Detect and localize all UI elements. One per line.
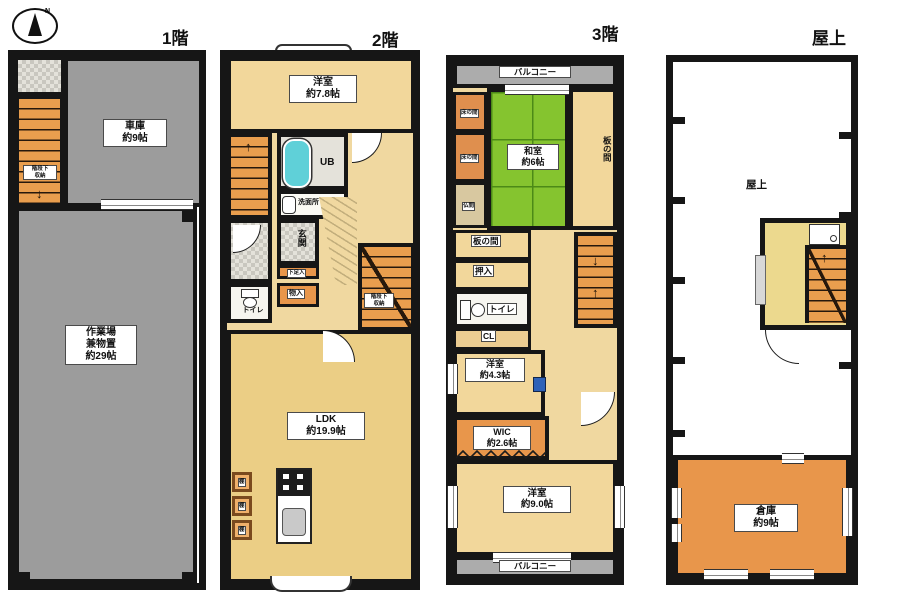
compass-needle-icon — [28, 13, 42, 36]
tokonoma-label: 床の間 — [460, 109, 479, 118]
butsuma-label: 仏間 — [462, 202, 475, 211]
kitchen-sink-icon — [282, 508, 306, 536]
window — [447, 364, 458, 394]
shelf-label: 棚 — [238, 526, 246, 535]
ldk-label: LDK 約19.9帖 — [287, 412, 365, 440]
balcony-door-opening — [505, 84, 569, 95]
roof-terrace-label: 屋上 — [743, 178, 770, 193]
genkan-label: 玄関 — [295, 229, 308, 247]
bedroom78-label: 洋室 約7.8帖 — [289, 75, 357, 103]
window — [770, 569, 814, 580]
door-opening — [782, 453, 804, 464]
fixture-icon — [533, 377, 546, 392]
balcony-top-label: バルコニー — [499, 66, 571, 78]
floor3-title: 3階 — [592, 20, 618, 45]
window — [447, 486, 458, 528]
washitsu-label: 和室 約6帖 — [507, 144, 559, 170]
wic-room: WIC 約2.6帖 — [453, 416, 549, 460]
bathtub — [283, 139, 311, 188]
basin-drain-icon — [830, 235, 837, 242]
shelf-box: 棚 — [232, 472, 252, 492]
pillar — [182, 572, 193, 583]
stair-slope-hatch — [319, 197, 357, 285]
roof-title: 屋上 — [812, 24, 846, 49]
floor2-plan: 洋室 約7.8帖 ↑ トイレ UB 洗面所 玄関 下足入 物入 階段 — [220, 50, 420, 590]
bedroom90-label: 洋室 約9.0帖 — [503, 486, 571, 513]
floor3-plan: バルコニー 床の間 床の間 仏間 和室 約6帖 板の間 板の間 押入 トイレ C… — [446, 55, 624, 585]
workshop-label: 作業場 兼物置 約29帖 — [65, 325, 137, 365]
unit-bath-label: UB — [319, 157, 335, 169]
ldk-room: LDK 約19.9帖 棚 棚 棚 — [227, 330, 415, 583]
wic-label: WIC 約2.6帖 — [473, 426, 531, 450]
window — [671, 524, 682, 542]
toilet-bowl-icon — [471, 303, 485, 317]
floor1-plan: 階段下 収納 ↓ 車庫 約9帖 作業場 兼物置 約29帖 — [8, 50, 206, 590]
shelf-box: 棚 — [232, 520, 252, 540]
stairs-2f-right: 階段下 収納 — [358, 243, 415, 331]
wall-tab — [673, 277, 685, 284]
window — [842, 488, 853, 536]
washitsu-room: 和室 約6帖 — [487, 88, 569, 230]
roof-plan: 屋上 ↑ 倉庫 約9帖 — [666, 55, 858, 585]
wall-tab — [839, 362, 851, 369]
toilet-icon — [460, 300, 471, 320]
understair-storage-label: 階段下 収納 — [364, 293, 394, 308]
pillar — [182, 211, 193, 222]
enclosure-window — [755, 255, 766, 305]
stairs-3f: ↓ ↑ — [574, 232, 617, 328]
stairs-2f-left: ↑ — [227, 133, 272, 219]
garage-door-opening — [101, 199, 193, 210]
kitchen-unit — [276, 468, 312, 544]
compass: N — [12, 8, 58, 44]
roof-stair-enclosure: ↑ — [760, 218, 851, 330]
tokonoma-label: 床の間 — [460, 154, 479, 163]
floor1-title: 1階 — [162, 24, 188, 49]
shoe-cabinet-label: 下足入 — [287, 269, 306, 278]
wall-tab — [673, 197, 685, 204]
stair-arrow-down-icon: ↓ — [36, 187, 43, 200]
stair-arrow-up-icon: ↑ — [592, 286, 599, 299]
floorplan-image: N 1階 2階 3階 屋上 階段下 収納 ↓ 車庫 約9帖 作業場 兼物置 約2… — [0, 0, 900, 600]
itanoma-side-label: 板の間 — [601, 136, 613, 162]
floor2-title: 2階 — [372, 26, 398, 51]
stair-arrow-up-icon: ↑ — [821, 251, 828, 264]
itanoma-side-room: 板の間 — [569, 88, 617, 230]
compass-north-label: N — [45, 8, 50, 15]
workshop-room — [15, 207, 197, 583]
wall-tab — [839, 212, 851, 219]
door-arc — [352, 133, 382, 163]
bay-window-bottom — [270, 576, 352, 592]
tokonoma-box: 床の間 — [453, 92, 487, 132]
bedroom43-label: 洋室 約4.3帖 — [465, 358, 525, 382]
wall-tab — [673, 357, 685, 364]
door-arc — [765, 330, 799, 364]
balcony-bottom-label: バルコニー — [499, 560, 571, 572]
toilet-label: トイレ — [235, 307, 271, 315]
shelf-box: 棚 — [232, 496, 252, 516]
stair-arrow-up-icon: ↑ — [245, 140, 252, 153]
toilet-room: トイレ — [227, 283, 272, 323]
tokonoma-box: 床の間 — [453, 132, 487, 182]
window — [704, 569, 748, 580]
shelf-label: 棚 — [238, 478, 246, 487]
genkan-room: 玄関 — [277, 219, 319, 265]
toilet-room: トイレ — [453, 290, 531, 328]
stairs-roof: ↑ — [805, 245, 846, 323]
understair-storage-label: 階段下 収納 — [23, 165, 57, 180]
shelf-label: 棚 — [238, 502, 246, 511]
stair-arrow-down-icon: ↓ — [592, 254, 599, 267]
window — [614, 486, 625, 528]
itanoma-label: 板の間 — [471, 235, 501, 247]
closet-label: 物入 — [287, 289, 305, 299]
sink-icon — [282, 196, 296, 214]
unit-bath-room: UB — [277, 133, 348, 190]
toilet-label: トイレ — [487, 303, 517, 315]
closet-room: 物入 — [277, 283, 319, 307]
stove-icon — [278, 470, 310, 496]
door-arc — [581, 392, 615, 426]
storage-label: 倉庫 約9帖 — [734, 504, 798, 532]
cl-label: CL — [481, 330, 496, 342]
stairs-1f: 階段下 収納 ↓ — [15, 95, 64, 207]
window — [671, 488, 682, 518]
wall-tab — [673, 430, 685, 437]
pillar — [19, 572, 30, 583]
garage-label: 車庫 約9帖 — [103, 119, 167, 147]
washbasin-icon — [809, 224, 840, 245]
butsuma-room: 仏間 — [453, 182, 487, 228]
washroom-label: 洗面所 — [297, 199, 320, 207]
storage-room: 倉庫 約9帖 — [673, 455, 851, 578]
wall-tab — [673, 117, 685, 124]
accordion-door — [456, 450, 546, 459]
wall-tab — [839, 132, 851, 139]
shoe-cabinet: 下足入 — [277, 265, 319, 279]
entry-tile-area — [15, 57, 64, 95]
oshiire-label: 押入 — [473, 265, 494, 277]
